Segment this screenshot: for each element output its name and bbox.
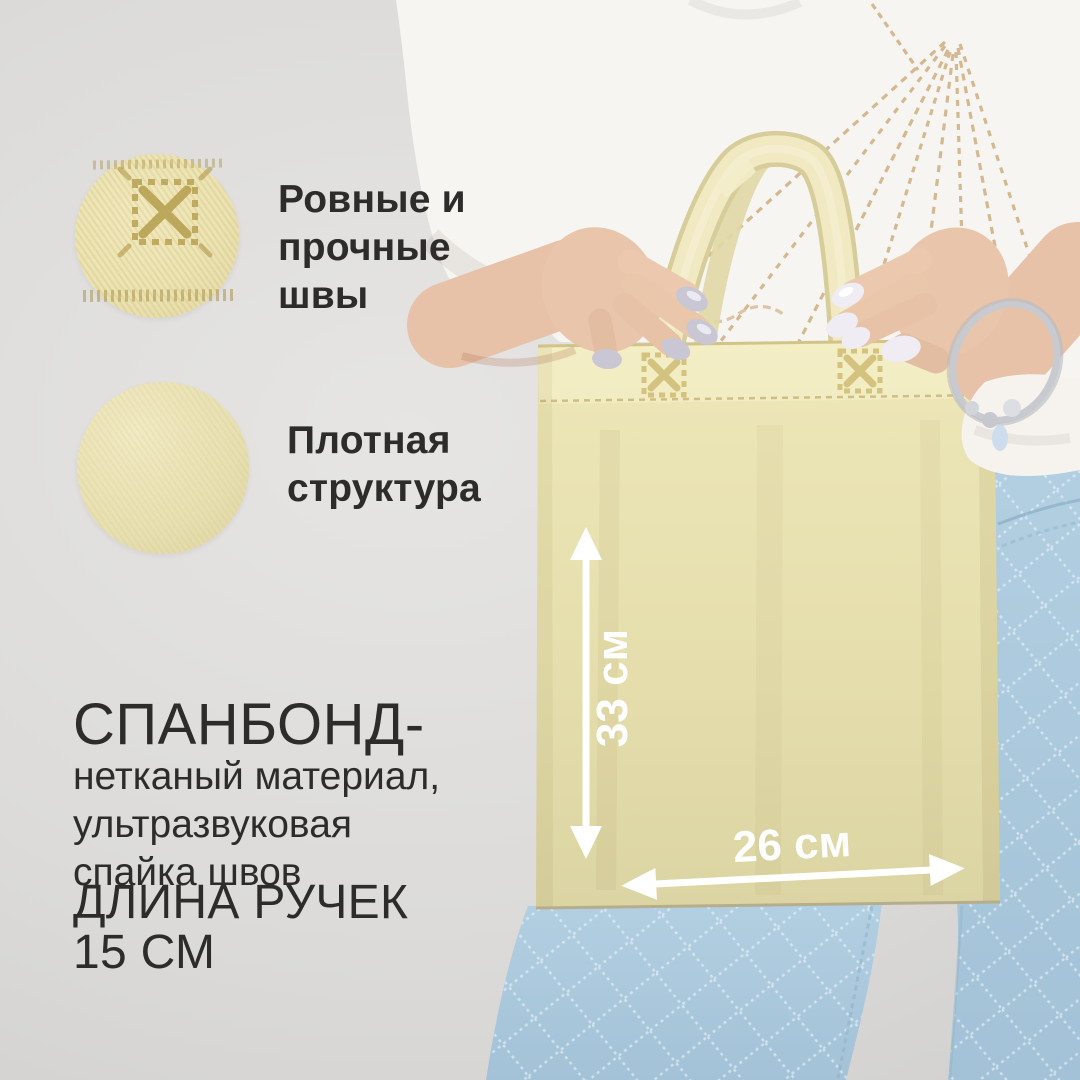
material-description-line: нетканый материал,: [73, 753, 440, 801]
callout-density-text: Плотная структура: [287, 417, 481, 513]
callout-line: швы: [278, 272, 466, 320]
handle-length-line: 15 СМ: [73, 928, 408, 978]
callout-line: Плотная: [287, 417, 481, 465]
handle-length-text: ДЛИНА РУЧЕК 15 СМ: [73, 878, 408, 978]
tshirt-hem: [962, 374, 1080, 476]
crystal-charm: [992, 425, 1008, 451]
handle-length-line: ДЛИНА РУЧЕК: [73, 878, 408, 928]
fabric-detail-circle: [77, 382, 249, 554]
product-card-image: Ровные и прочные швы Плотная структура С…: [0, 0, 1080, 1080]
seam-detail-circle: [75, 154, 239, 318]
callout-line: прочные: [278, 224, 466, 272]
material-title: СПАНБОНД-: [73, 696, 425, 754]
callout-seams-text: Ровные и прочные швы: [278, 176, 466, 320]
callout-line: структура: [287, 465, 481, 513]
callout-line: Ровные и: [278, 176, 466, 224]
height-label: 33 см: [588, 629, 638, 747]
weld-stitch-icon: [75, 154, 239, 318]
material-description-line: ультразвуковая: [73, 801, 440, 849]
width-label: 26 см: [732, 817, 853, 873]
